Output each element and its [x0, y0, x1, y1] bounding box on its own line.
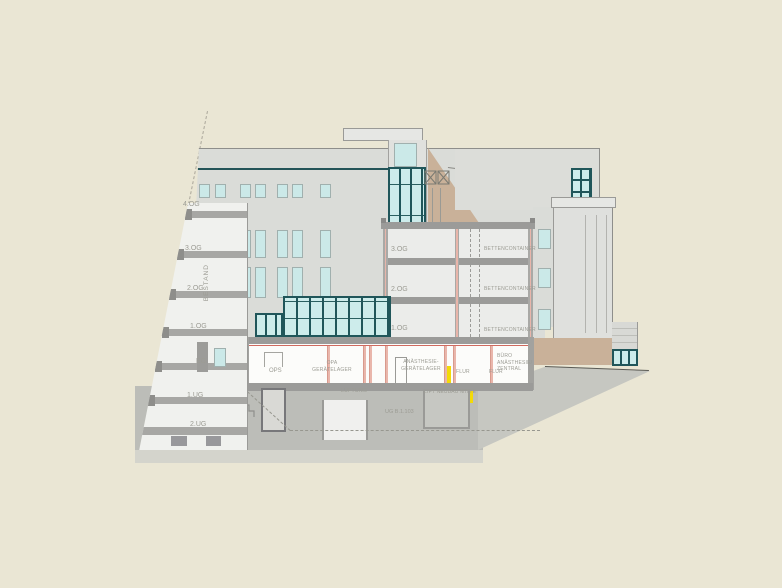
slab-bracket: [162, 327, 169, 338]
floor-slab: [137, 427, 248, 435]
room-label-lift: LIFT NEUBAU MITTE: [424, 390, 476, 395]
right-low-windows: [612, 349, 638, 366]
room-label-ug: UG B.1.103: [385, 410, 414, 416]
window: [538, 309, 551, 330]
eg-rooms: [248, 344, 528, 384]
room-label-buero: BÜRO ANÄSTHESIE/ ZENTRAL: [497, 353, 531, 373]
floor-label: 3.OG: [185, 245, 202, 252]
eg-red-line: [249, 345, 528, 346]
slab-bracket: [155, 361, 162, 372]
floor-label: 2.OG: [187, 285, 204, 292]
room-label-line: GERÄTELAGER: [394, 366, 448, 373]
cut-wall: [490, 346, 493, 384]
window: [292, 267, 303, 298]
brace-hanger-line: [440, 188, 441, 222]
tan-lower-band: [532, 338, 612, 365]
parapet-upstand: [530, 218, 535, 223]
window: [277, 184, 288, 198]
slab-bracket: [177, 249, 184, 260]
floor-slab: [137, 291, 248, 298]
right-low-structure: [612, 322, 638, 349]
room-label-lueftung: LÜFTUNG: [341, 389, 367, 395]
equipment-outline: [264, 352, 283, 367]
cornice-line: [193, 168, 390, 170]
window: [255, 230, 266, 258]
architectural-drawing: 4.OG 3.OG 2.OG 1.OG EG 1.UG 2.UG BESTAND…: [0, 0, 782, 588]
window: [538, 268, 551, 288]
room-label-line: OPA: [310, 360, 354, 367]
slab-bracket: [185, 209, 192, 220]
floor-label: 4.OG: [183, 201, 200, 208]
window: [320, 267, 331, 298]
floor-slab: [137, 211, 248, 218]
facade-strip: [533, 207, 553, 327]
basement-room: [322, 400, 368, 440]
window: [320, 184, 331, 198]
tower-parapet: [551, 197, 616, 208]
floor-label: 1.OG: [190, 323, 207, 330]
footing: [206, 436, 221, 446]
shaft-dashed-line: [470, 229, 471, 337]
section-level-label: 2.OG: [391, 286, 408, 293]
eg-bottom-slab: [243, 383, 533, 391]
room-label-anaesthesie: ANÄSTHESIE- GERÄTELAGER: [394, 359, 448, 373]
footing: [171, 436, 187, 446]
brace-hanger-line: [432, 188, 433, 222]
window: [277, 267, 288, 298]
tower-window: [394, 143, 417, 167]
window: [320, 230, 331, 258]
room-label-line: ANÄSTHESIE-: [394, 359, 448, 366]
slab-bracket: [169, 289, 176, 300]
floor-slab: [137, 251, 248, 258]
floor-label: EG: [196, 358, 206, 365]
window: [277, 230, 288, 258]
window: [215, 184, 226, 198]
lift-shaft: [423, 389, 470, 429]
room-label-line: ZENTRAL: [497, 366, 531, 373]
steel-x-brace-icon: [424, 169, 452, 187]
section-level-label: 3.OG: [391, 246, 408, 253]
ground-dashed-level: [290, 430, 540, 431]
window: [538, 229, 551, 249]
building-edge: [247, 203, 248, 450]
window: [292, 184, 303, 198]
parapet-upstand: [381, 218, 386, 223]
floor-label: 2.UG: [190, 421, 206, 428]
room-label-ops: OPS: [269, 368, 282, 374]
cut-wall: [369, 346, 372, 384]
room-label-opa: OPA GERÄTELAGER: [310, 360, 354, 374]
room-label-line: GERÄTELAGER: [310, 367, 354, 374]
cut-wall: [363, 346, 366, 384]
atrium-glazing: [283, 296, 391, 337]
window: [199, 184, 210, 198]
bestand-label: BESTAND: [204, 264, 211, 301]
shaft-section: [261, 388, 286, 432]
room-label-flur: FLUR: [456, 370, 470, 375]
room-label-betten: BETTENCONTAINER: [484, 287, 536, 292]
window: [255, 184, 266, 198]
room-label-betten: BETTENCONTAINER: [484, 247, 536, 252]
window: [214, 348, 226, 367]
cut-wall: [385, 346, 388, 384]
floor-label: 1.UG: [187, 392, 203, 399]
eg-top-slab: [243, 337, 533, 344]
cut-wall: [453, 346, 456, 384]
room-label-betten: BETTENCONTAINER: [484, 328, 536, 333]
section-level-label: 1.OG: [391, 325, 408, 332]
floor-slab: [137, 363, 248, 370]
window: [240, 184, 251, 198]
downpipe: [606, 215, 607, 333]
floor-slab: [137, 329, 248, 336]
atrium-glazing-low: [255, 313, 283, 337]
window: [255, 267, 266, 298]
window: [292, 230, 303, 258]
ground-foundation-strip: [135, 450, 483, 463]
downpipe: [585, 215, 586, 333]
shaft-dashed-line: [479, 229, 480, 337]
section-wall-mid: [455, 229, 459, 337]
wall-block: [197, 342, 208, 372]
right-tower: [553, 197, 613, 338]
section-roof-slab: [381, 222, 535, 229]
downpipe: [596, 215, 597, 333]
